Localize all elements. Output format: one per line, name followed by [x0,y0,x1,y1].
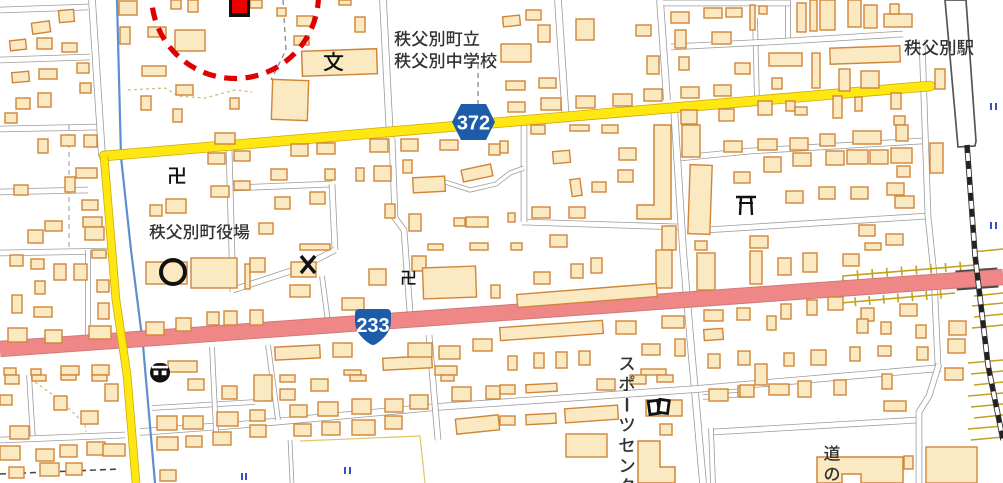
svg-text:233: 233 [356,315,389,337]
svg-text:372: 372 [457,113,490,135]
